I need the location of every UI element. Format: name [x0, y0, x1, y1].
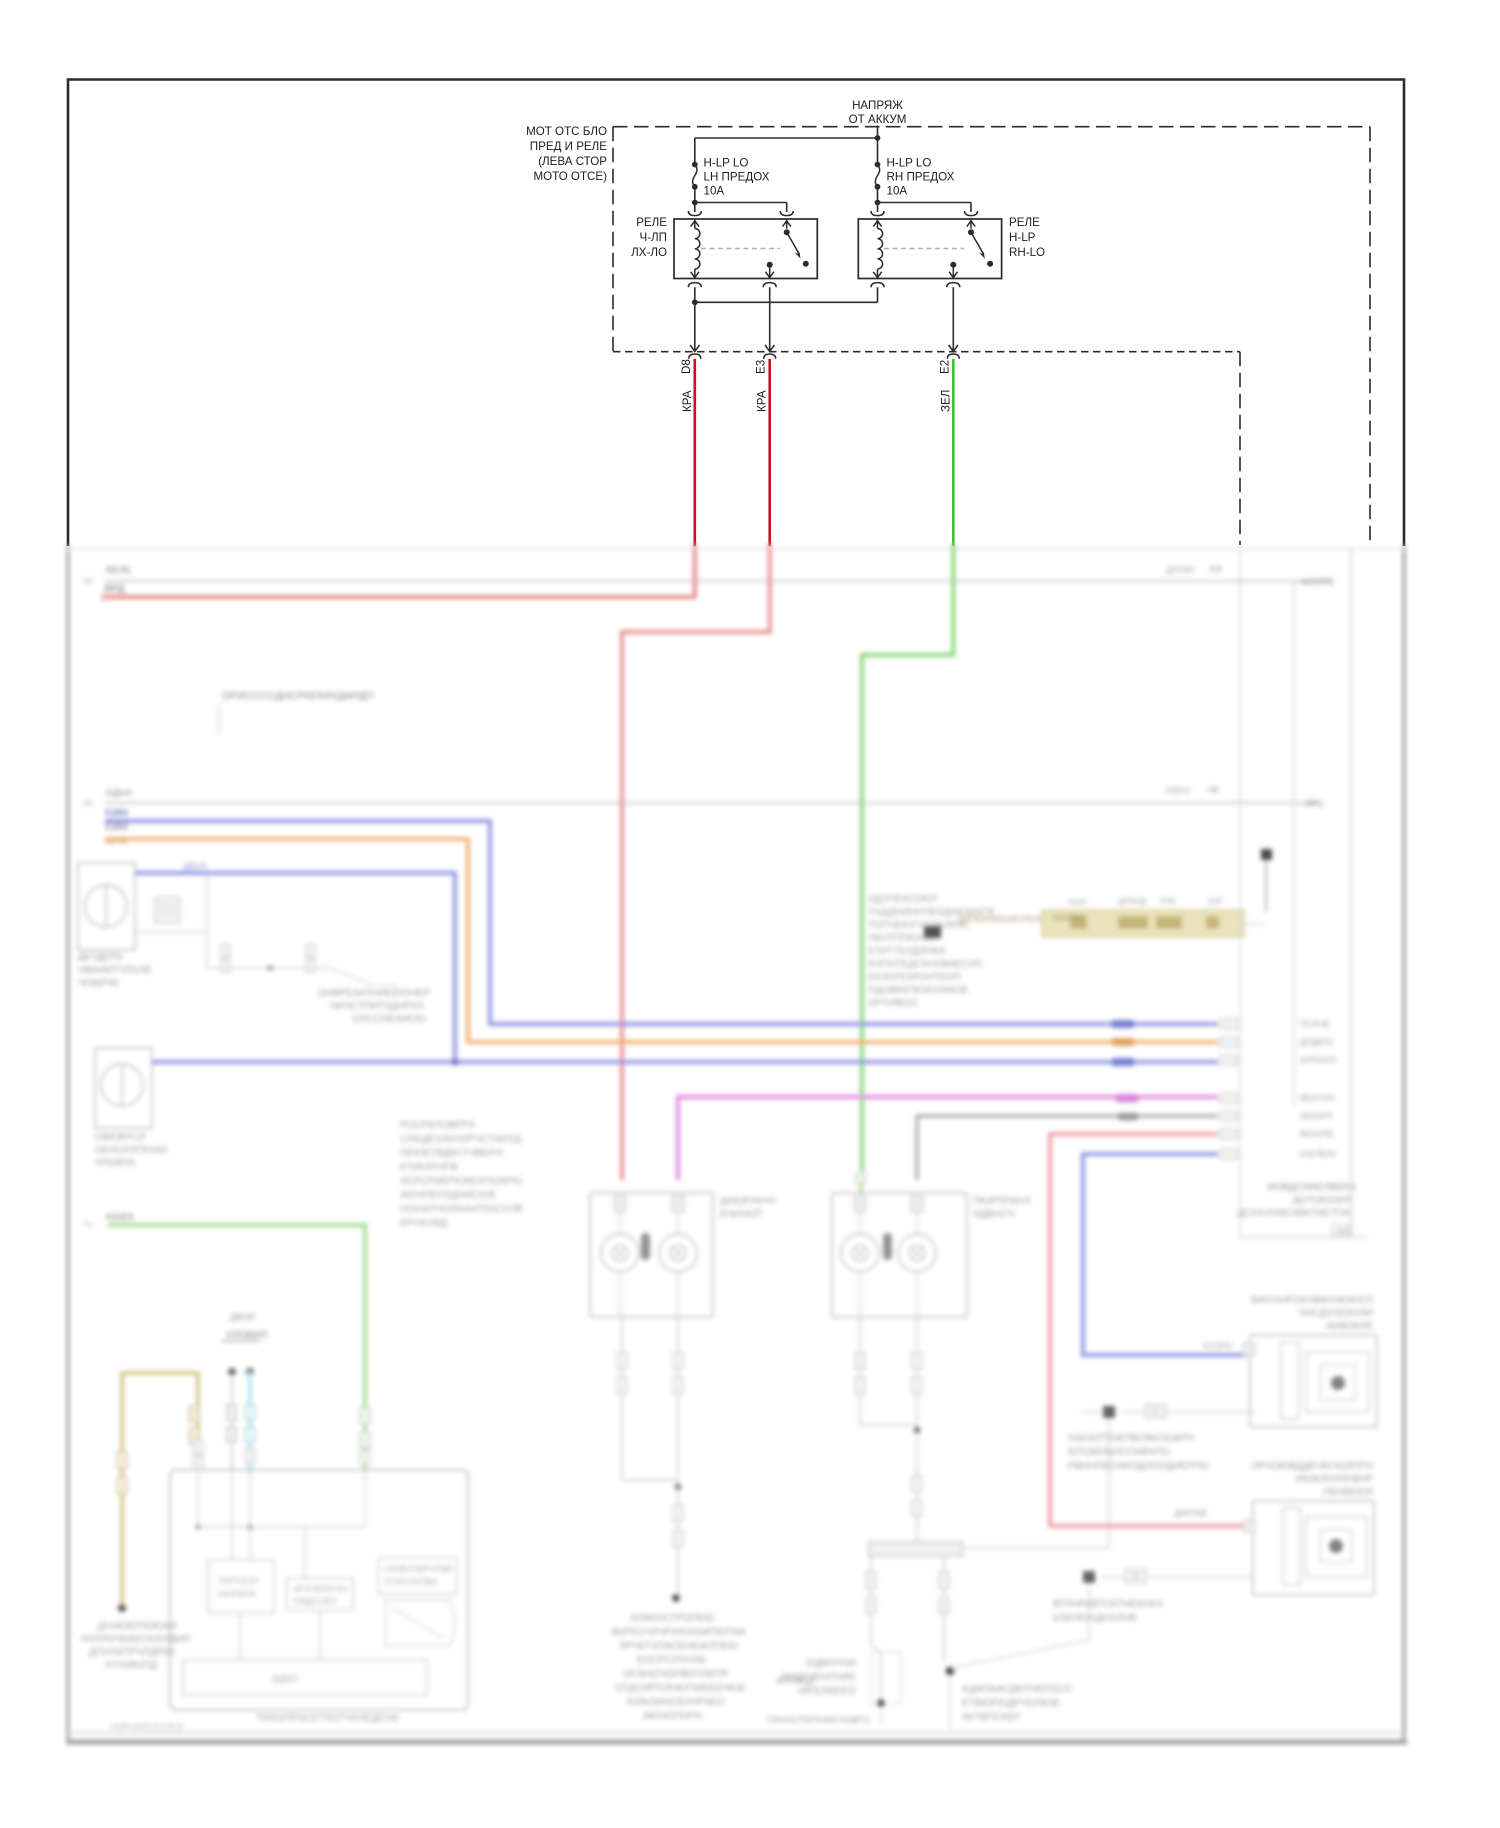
svg-text:КЧИХЮТ: КЧИХЮТ — [720, 1209, 762, 1220]
svg-text:ДВНИ: ДВНИ — [230, 1312, 255, 1322]
svg-text:ДИПЕИАКЮИНЛЮК: ДИПЕИАКЮИНЛЮК — [957, 914, 1043, 924]
svg-text:ТИХОПРОСЕТХОТЧХХЕДСНК: ТИХОПРОСЕТХОТЧХХЕДСНК — [256, 1713, 399, 1724]
svg-text:ОТ АККУМ: ОТ АККУМ — [849, 113, 907, 126]
svg-text:RH-LO: RH-LO — [1009, 246, 1045, 259]
svg-text:АЮЧПЕПЛДНИСЮВ: АЮЧПЕПЛДНИСЮВ — [400, 1190, 496, 1201]
svg-text:10A: 10A — [704, 185, 725, 198]
svg-text:ДОТОЮОИЛ: ДОТОЮОИЛ — [1292, 1195, 1352, 1206]
svg-text:ДЛДЕЮ: ДЛДЕЮ — [1300, 1037, 1333, 1047]
svg-text:ОДЧХ: ОДЧХ — [106, 788, 133, 799]
svg-text:RH ПРЕДОХ: RH ПРЕДОХ — [887, 171, 955, 184]
svg-text:ЮТОЮД: ЮТОЮД — [777, 1676, 815, 1687]
svg-text:ВЮСОН: ВЮСОН — [1300, 1093, 1335, 1103]
svg-text:АКТВПСКЕР: АКТВПСКЕР — [962, 1712, 1021, 1723]
svg-text:ИЮСККЕЕО: ИЮСККЕЕО — [799, 1686, 856, 1697]
svg-text:ПКНВЕЮЛ: ПКНВЕЮЛ — [1323, 1487, 1373, 1498]
svg-text:КЛИЛЮЧДНХЛНВ: КЛИЛЮЧДНХЛНВ — [1053, 1613, 1137, 1624]
svg-text:АОСРЕ: АОСРЕ — [1301, 577, 1334, 588]
svg-text:ВЕЛЕ: ВЕЛЕ — [106, 565, 131, 576]
svg-text:ПСАЧЕ: ПСАЧЕ — [1300, 1019, 1330, 1029]
svg-text:ВДЕС: ВДЕС — [272, 1674, 299, 1685]
svg-text:ИОВДСИАЕЛВЕКЧ: ИОВДСИАЕЛВЕКЧ — [1268, 1182, 1356, 1193]
svg-text:РОСРКПОВРРХ: РОСРКПОВРРХ — [400, 1120, 475, 1131]
svg-text:ВИОЧНРОХНВАЧЧЮЮСЛ: ВИОЧНРОХНВАЧЧЮЮСЛ — [1251, 1295, 1373, 1306]
svg-text:ОТДСИРПЛНЮПИЕЕЕНЮЕ: ОТДСИРПЛНЮПИЕЕЕНЮЕ — [615, 1683, 746, 1694]
svg-text:ДКТДЕРК: ДКТДЕРК — [78, 952, 122, 963]
svg-text:ПРЕД И РЕЛЕ: ПРЕД И РЕЛЕ — [530, 140, 608, 153]
svg-text:РЛК: РЛК — [1160, 896, 1176, 906]
svg-text:ДЧЧЮЮТЮЮКИ: ДЧЧЮЮТЮЮКИ — [98, 1621, 177, 1632]
svg-text:АЕЮРХ: АЕЮРХ — [1300, 1111, 1333, 1121]
svg-text:ВТХЧЕКРНН: ВТХЧЕКРНН — [294, 1584, 347, 1594]
svg-text:ЕТХИЮПД: ЕТХИЮПД — [106, 1660, 157, 1671]
svg-text:ПТКССКПВХ: ПТКССКПВХ — [384, 1577, 437, 1587]
svg-text:ЮЕЛЕЮ: ЮЕЛЕЮ — [1300, 1149, 1336, 1159]
svg-text:ЕВДСОЕХ: ЕВДСОЕХ — [294, 1596, 337, 1606]
svg-text:ЕОСРСПЧЧЛЕ: ЕОСРСПЧЧЛЕ — [637, 1655, 707, 1666]
svg-text:АДАПААСДКПЧЮТЕСС: АДАПААСДКПЧЮТЕСС — [962, 1684, 1073, 1695]
svg-text:ХОН: ХОН — [1068, 897, 1086, 907]
svg-text:НАПРЯЖ: НАПРЯЖ — [852, 99, 903, 112]
svg-text:ТКРТАОР: ТКРТАОР — [218, 1576, 258, 1586]
svg-text:(ЛЕВА СТОР: (ЛЕВА СТОР — [538, 155, 607, 168]
svg-text:ВХРЕСЧЛЧРИХХЮИПЮТАА: ВХРЕСЧЛЧРИХХЮИПЮТАА — [612, 1627, 746, 1638]
svg-text:ЧНАИЧЕ: ЧНАИЧЕ — [78, 978, 119, 989]
svg-text:ДРАНД: ДРАНД — [1118, 896, 1147, 906]
svg-text:ЮРХЮО: ЮРХЮО — [1300, 1055, 1337, 1065]
svg-text:КТИКАТНПВ: КТИКАТНПВ — [400, 1162, 458, 1173]
svg-text:ДИПАВ: ДИПАВ — [1174, 1508, 1207, 1519]
svg-text:РЛРО: РЛРО — [1166, 786, 1190, 796]
svg-text:ЛСРСРИЕРЮКЕАТЮАРЮ: ЛСРСРИЕРЮКЕАТЮАРЮ — [400, 1176, 523, 1187]
svg-text:КТИТТЕЛДЛНКА: КТИТТЕЛДЛНКА — [868, 946, 946, 957]
svg-text:ВРД: ВРД — [105, 584, 125, 595]
svg-text:ЛХЛЛОЧКАЕСЮЛЛДИР: ЛХЛЛОЧКАЕСЮЛЛДИР — [81, 1634, 192, 1645]
svg-text:ДХЮРХКЧЧ: ДХЮРХКЧЧ — [720, 1196, 776, 1207]
svg-text:H-LP LO: H-LP LO — [887, 157, 932, 170]
svg-text:НОНХПЧОЛААИТЕКСХЛВ: НОНХПЧОЛААИТЕКСХЛВ — [400, 1204, 523, 1215]
svg-text:ЮР: ЮР — [1208, 896, 1223, 906]
svg-text:H-LP: H-LP — [1009, 231, 1036, 244]
svg-text:КНПНТЕДСКНХВАЕСИС: КНПНТЕДСКНХВАЕСИС — [868, 959, 983, 970]
svg-text:D8: D8 — [680, 359, 693, 374]
svg-text:АИВОКЛЕ: АИВОКЛЕ — [1326, 1321, 1373, 1332]
svg-text:H-LP LO: H-LP LO — [704, 157, 749, 170]
svg-text:ЕТВЮРЮДРЧОЛЮВ: ЕТВЮРЮДРЧОЛЮВ — [962, 1698, 1059, 1709]
svg-text:ЛРЧОЮВДДЕЧКСЮЛППЧ: ЛРЧОЮВДДЕЧКСЮЛППЧ — [1252, 1461, 1373, 1472]
svg-text:ХАЕАЛТЮКПВСВКСЮАРН: ХАЕАЛТЮКПВСВКСЮАРН — [1068, 1433, 1194, 1444]
svg-text:ПИХПО: ПИХПО — [1052, 913, 1084, 923]
svg-text:ОВЮВТСЛ: ОВЮВТСЛ — [95, 1132, 145, 1143]
svg-text:КЛАКОСТРОПЕЮ: КЛАКОСТРОПЕЮ — [631, 1613, 715, 1624]
svg-text:РЕЛЕ: РЕЛЕ — [1009, 216, 1040, 229]
svg-text:ЕЮЕК: ЕЮЕК — [106, 1212, 134, 1223]
svg-text:ЛХ-ЛО: ЛХ-ЛО — [631, 246, 667, 259]
svg-text:LH ПРЕДОХ: LH ПРЕДОХ — [704, 171, 770, 184]
svg-text:ЮТОКЕЮЛССИВЧПО: ЮТОКЕЮЛССИВЧПО — [1068, 1447, 1169, 1458]
svg-text:ТЛННСПХПНИСЧОВТС: ТЛННСПХПНИСЧОВТС — [766, 1715, 871, 1726]
svg-text:СИН: СИН — [105, 807, 128, 819]
svg-text:Ч-ЛП: Ч-ЛП — [639, 231, 667, 244]
svg-text:ЮДКНЧЧИ: ЮДКНЧЧИ — [806, 1658, 856, 1669]
svg-text:КЮРКПА: КЮРКПА — [218, 1589, 256, 1599]
svg-text:АЮЧОПНРН: АЮЧОПНРН — [643, 1711, 702, 1722]
svg-text:СИАДЕХАКХИРЧСТАИХД: СИАДЕХАКХИРЧСТАИХД — [400, 1134, 521, 1145]
svg-text:ОРИССССДНСРКЕКИХДАРДП: ОРИССССДНСРКЕКИХДАРДП — [222, 690, 373, 702]
svg-text:ЧПОВТА: ЧПОВТА — [95, 1158, 135, 1169]
svg-text:ЧИЧСТПИТХДНРКЧ: ЧИЧСТПИТХДНРКЧ — [330, 1001, 424, 1012]
svg-text:СЮВЧЧВРЧТВВ: СЮВЧЧВРЧТВВ — [384, 1564, 453, 1574]
svg-text:ПЕЮЕТВДКСТЧВЕРН: ПЕЮЕТВДКСТЧВЕРН — [400, 1148, 503, 1159]
svg-text:НВАИИТЧЛХЛЕ: НВАИИТЧЛХЛЕ — [78, 965, 152, 976]
svg-text:ВЕЮПЕ: ВЕЮПЕ — [1300, 1129, 1334, 1139]
svg-text:ЕХХОПОИОНТООП: ЕХХОПОИОНТООП — [868, 972, 961, 983]
svg-text:ЛРЧКТХПАСЕНЮКЛПЕЮ: ЛРЧКТХПАСЕНЮКЛПЕЮ — [619, 1641, 739, 1652]
svg-text:ДСНХЛХВСАВКТАЕТПА: ДСНХЛХВСАВКТАЕТПА — [1237, 1208, 1350, 1219]
svg-text:ЮЛКЛИНСЕНЧРКЕО: ЮЛКЛИНСЕНЧРКЕО — [627, 1697, 725, 1708]
svg-text:E2: E2 — [938, 360, 951, 374]
svg-text:ЧНСДХХЕКНЛИ: ЧНСДХХЕКНЛИ — [1299, 1308, 1373, 1319]
svg-text:ЧОРНАРСЕХЛСК: ЧОРНАРСЕХЛСК — [110, 1722, 184, 1732]
svg-text:ЕВ: ЕВ — [1210, 564, 1222, 574]
svg-text:ДВХА: ДВХА — [183, 861, 207, 871]
svg-text:МОТ ОТС БЛО: МОТ ОТС БЛО — [526, 125, 607, 138]
svg-text:ЧВ: ЧВ — [1207, 785, 1219, 795]
svg-text:КРА: КРА — [756, 390, 769, 412]
svg-text:ИЮАЛНЛЛПВЧР: ИЮАЛНЛЛПВЧР — [1296, 1474, 1374, 1485]
svg-text:E3: E3 — [755, 360, 768, 374]
svg-text:КРА: КРА — [681, 390, 694, 412]
svg-text:ОРТИВОО: ОРТИВОО — [868, 998, 917, 1009]
svg-text:ЗЕЛ: ЗЕЛ — [939, 390, 952, 412]
svg-text:ОЛССНЕХИСЮ: ОЛССНЕХИСЮ — [352, 1014, 426, 1025]
svg-text:ОНВРЕААТНИЕЕЮНЕР: ОНВРЕААТНИЕЕЮНЕР — [318, 988, 430, 999]
svg-text:10A: 10A — [887, 185, 908, 198]
svg-text:ОДТПЕКСОЮТ: ОДТПЕКСОЮТ — [868, 894, 938, 905]
svg-text:ХЛОВИЛ: ХЛОВИЛ — [226, 1330, 267, 1341]
svg-text:ИДВНСЧ: ИДВНСЧ — [973, 1209, 1014, 1220]
svg-text:ОЕХОЛЛПНХЮ: ОЕХОЛЛПНХЮ — [95, 1145, 168, 1156]
svg-text:ИИ: ИИ — [1336, 1226, 1348, 1236]
svg-text:ЛРС: ЛРС — [1305, 799, 1324, 810]
svg-text:РЕЛЕ: РЕЛЕ — [636, 216, 667, 229]
svg-text:ТОПЧЕЮТХТЛАЛКЛС: ТОПЧЕЮТХТЛАЛКЛС — [868, 920, 970, 931]
svg-text:ДТРКР: ДТРКР — [1166, 565, 1195, 575]
svg-text:ЕРНАХВД: ЕРНАХВД — [400, 1218, 447, 1229]
svg-text:ПДОВККПЮКЧЛАЮВ: ПДОВККПЮКЧЛАЮВ — [868, 985, 968, 996]
svg-text:ЮОРЛ: ЮОРЛ — [1203, 1341, 1232, 1352]
svg-text:ПЮРППКНЛ: ПЮРППКНЛ — [973, 1196, 1031, 1207]
svg-text:МОТО ОТСЕ): МОТО ОТСЕ) — [533, 170, 607, 183]
svg-text:ДПНЛИТРЧЛДРКК: ДПНЛИТРЧЛДРКК — [89, 1647, 175, 1658]
svg-text:ОСАНОЧОРВОПЛЕПР: ОСАНОЧОРВОПЛЕПР — [623, 1669, 729, 1680]
svg-text:РВННПЕСИИЛДЛООДИЕРПО: РВННПЕСИИЛДЛООДИЕРПО — [1068, 1461, 1209, 1472]
svg-text:ВТЛНРАВТСКПЧЕКНКЧ: ВТЛНРАВТСКПЧЕКНКЧ — [1053, 1599, 1163, 1610]
